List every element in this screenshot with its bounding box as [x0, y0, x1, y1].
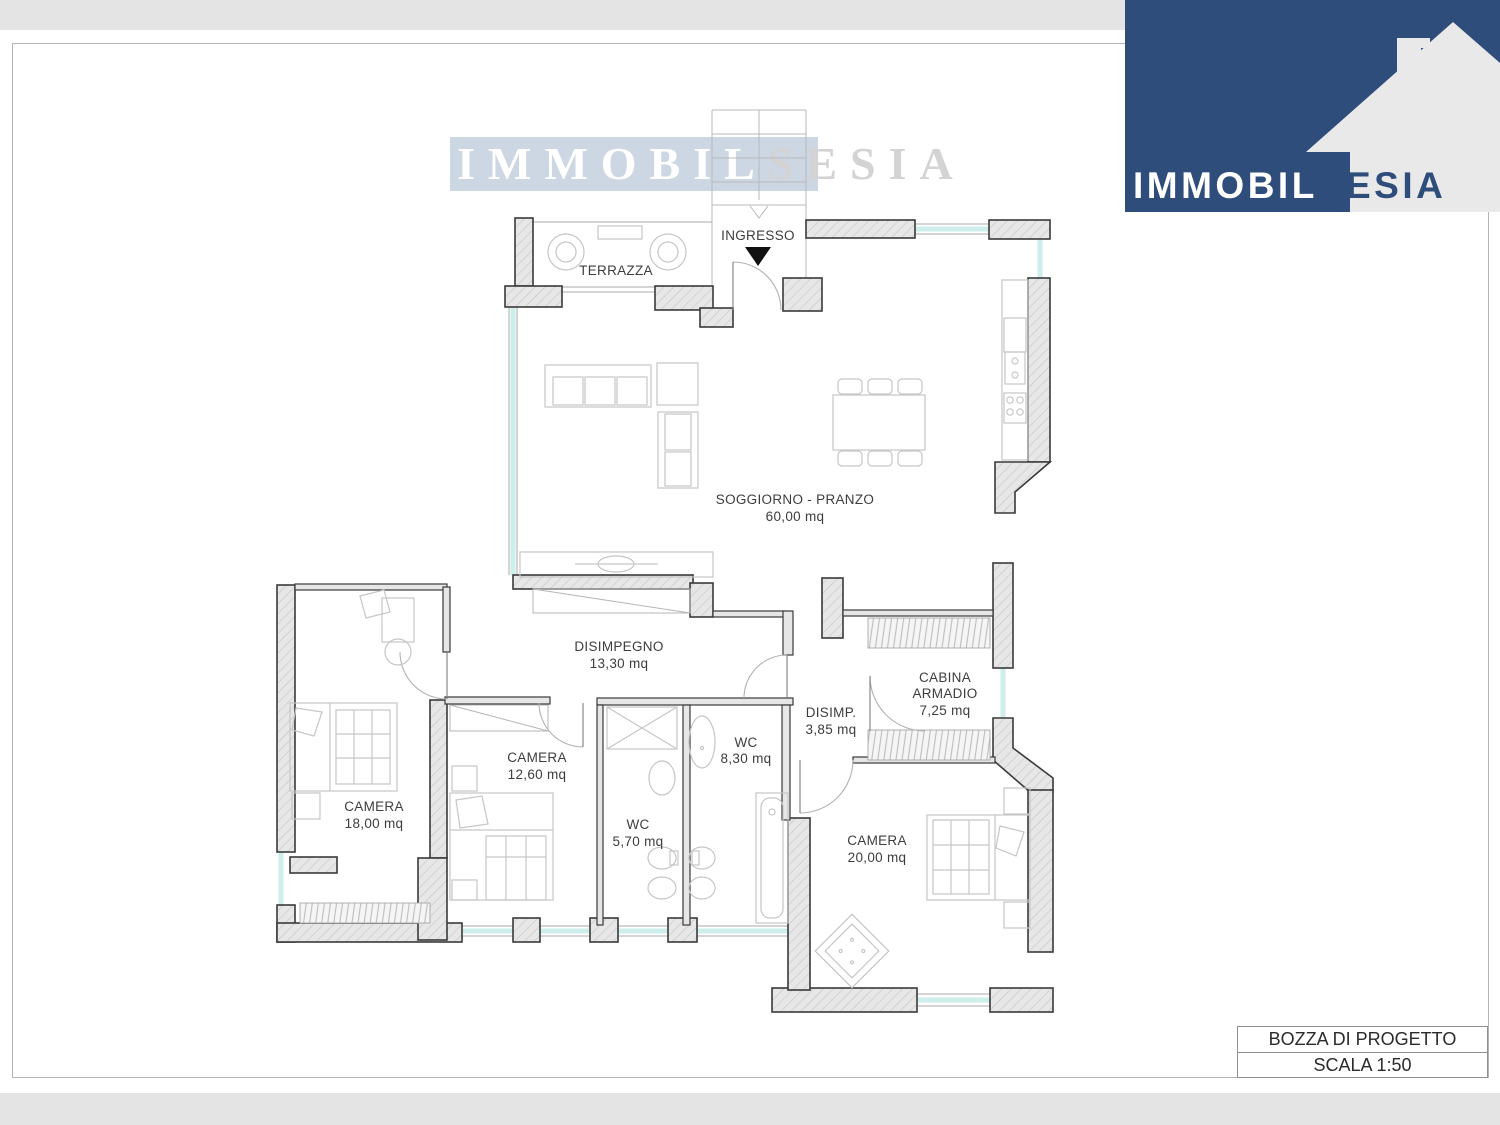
label-camera18: CAMERA	[344, 799, 404, 814]
sofa	[545, 363, 698, 488]
label-camera20-area: 20,00 mq	[848, 850, 907, 865]
furniture	[290, 226, 1030, 988]
entrance-arrow-icon	[745, 247, 771, 266]
label-wc-piccolo: WC	[626, 817, 649, 832]
label-disimpegno-area: 13,30 mq	[590, 656, 649, 671]
label-camera18-area: 18,00 mq	[345, 816, 404, 831]
camera12-furniture	[450, 766, 553, 900]
wc-piccolo-fixtures	[607, 707, 678, 899]
label-soggiorno-area: 60,00 mq	[766, 509, 825, 524]
camera18-furniture	[290, 590, 414, 819]
title-block: BOZZA DI PROGETTO SCALA 1:50	[1237, 1026, 1488, 1078]
label-wc-grande-area: 8,30 mq	[721, 751, 772, 766]
camera20-furniture	[815, 788, 1030, 988]
label-wc-grande: WC	[734, 735, 757, 750]
svg-text:IMMOBILSESIA: IMMOBILSESIA	[1133, 165, 1446, 206]
logo-part1: IMMOBIL	[1133, 165, 1318, 206]
kitchen	[1002, 280, 1028, 460]
dining-table	[833, 379, 925, 466]
agency-logo: IMMOBILSESIA	[1125, 0, 1500, 212]
tv-console	[520, 552, 713, 577]
label-ingresso: INGRESSO	[721, 228, 795, 243]
label-cabina-1: CABINA	[919, 670, 971, 685]
label-disimpegno: DISIMPEGNO	[574, 639, 663, 654]
built-in-closets	[450, 589, 690, 731]
label-cabina-2: ARMADIO	[912, 686, 977, 701]
label-soggiorno: SOGGIORNO - PRANZO	[716, 492, 874, 507]
label-cabina-area: 7,25 mq	[920, 703, 971, 718]
title-block-line2: SCALA 1:50	[1238, 1053, 1487, 1078]
logo-chimney-icon	[1397, 38, 1430, 84]
label-wc-piccolo-area: 5,70 mq	[613, 834, 664, 849]
label-disimp: DISIMP.	[806, 705, 857, 720]
logo-part2: SESIA	[1318, 165, 1447, 206]
label-camera12-area: 12,60 mq	[508, 767, 567, 782]
label-camera12: CAMERA	[507, 750, 567, 765]
label-terrazza: TERRAZZA	[579, 263, 653, 278]
label-disimp-area: 3,85 mq	[806, 722, 857, 737]
title-block-line1: BOZZA DI PROGETTO	[1238, 1027, 1487, 1053]
label-camera20: CAMERA	[847, 833, 907, 848]
